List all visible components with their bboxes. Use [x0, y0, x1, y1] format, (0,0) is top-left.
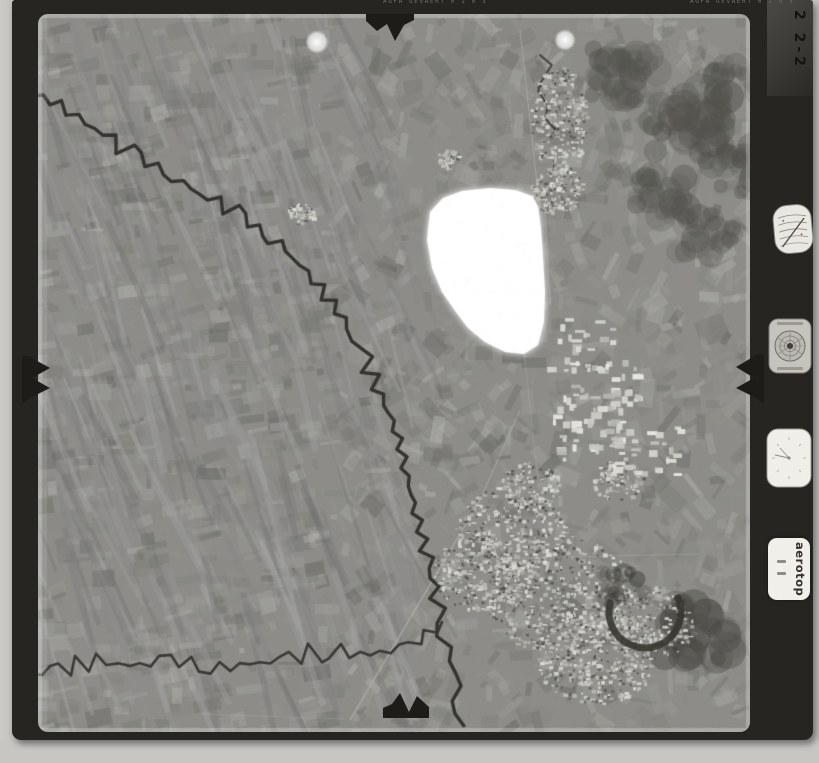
- film-edge-text-left: AGFA GEVAERT 0 1 0 3: [383, 0, 487, 5]
- frame-number: 2 2-2: [787, 10, 807, 76]
- aerotop-label-mark: [777, 560, 786, 563]
- paper-margin-right: [813, 0, 819, 763]
- fiducial-left-mark: [22, 356, 52, 404]
- aerotop-label: aerotop: [768, 538, 810, 600]
- altimeter-gauge: [772, 204, 814, 254]
- paper-margin-left: [0, 0, 12, 763]
- level-indicator-dial: [768, 318, 812, 374]
- paper-margin-bottom: [0, 740, 819, 763]
- film-sheet: AGFA GEVAERT 0 1 0 3 AGFA GEVAERT 0 1 0 …: [12, 0, 813, 740]
- fiducial-top-mark: [366, 14, 414, 44]
- fiducial-bottom-mark: [383, 690, 429, 718]
- fiducial-right-mark: [734, 354, 764, 404]
- clock-face: [766, 428, 812, 488]
- aerotop-label-mark: [777, 572, 786, 575]
- aerial-photo-canvas: [38, 14, 750, 732]
- film-edge-text-right: AGFA GEVAERT 0 1 0 3: [690, 0, 794, 5]
- scanned-aerial-photo: AGFA GEVAERT 0 1 0 3 AGFA GEVAERT 0 1 0 …: [0, 0, 819, 763]
- aerotop-label-text: aerotop: [793, 542, 807, 598]
